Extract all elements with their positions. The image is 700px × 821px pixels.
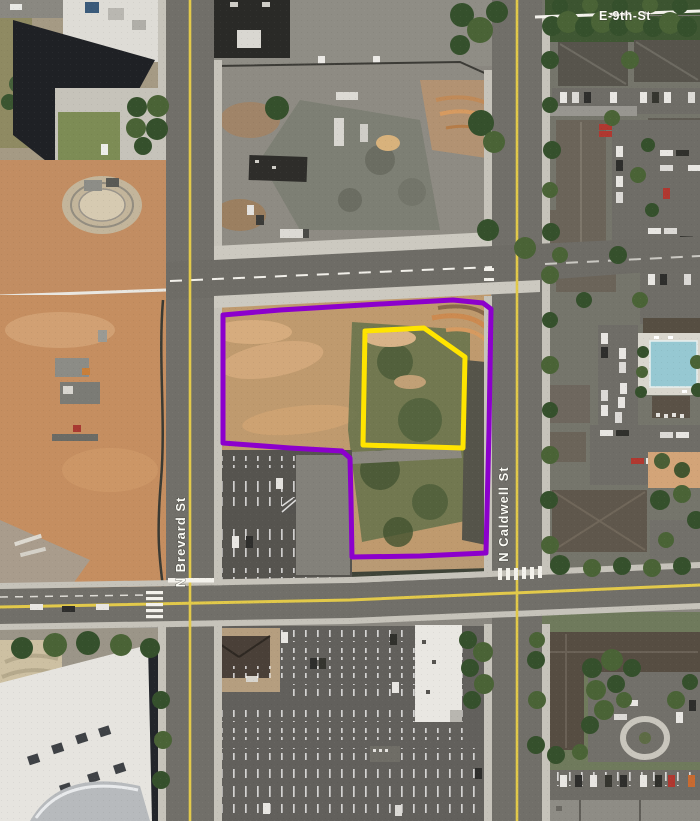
- grain-overlay: [0, 0, 700, 821]
- satellite-map: E-9th-St N Brevard St N Caldwell St: [0, 0, 700, 821]
- street-label-e-9th-st: E-9th-St: [599, 9, 651, 23]
- street-label-n-caldwell-st: N Caldwell St: [496, 466, 511, 561]
- street-label-n-brevard-st: N Brevard St: [173, 497, 188, 588]
